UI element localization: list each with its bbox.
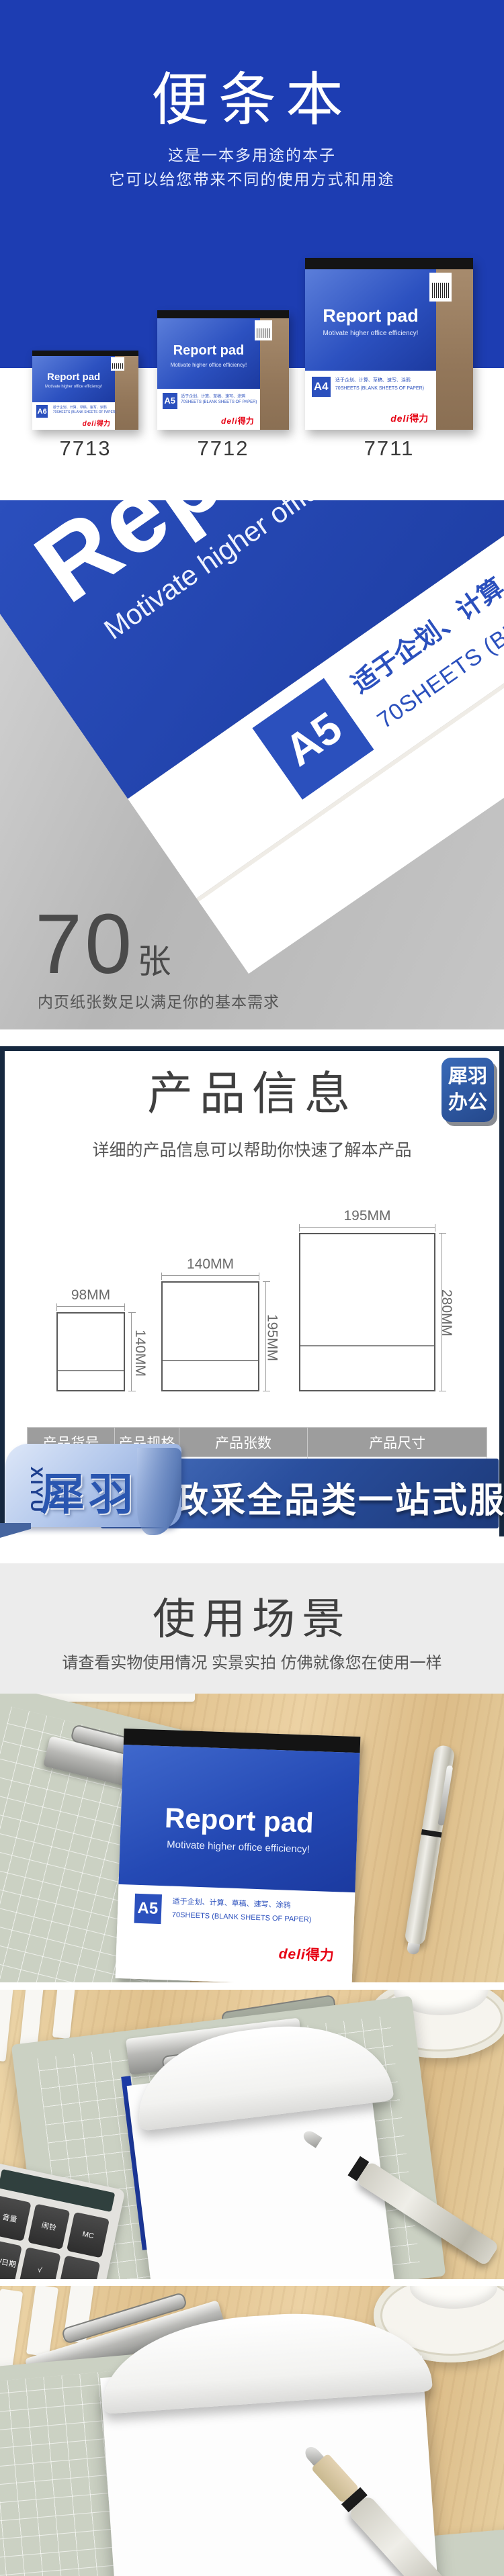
dim-a6-width-label: 98MM [56,1287,125,1303]
dim-a5-split-line [163,1360,258,1361]
ribbon-fold [137,1448,181,1535]
pad-cover: Report pad Motivate higher office effici… [305,269,436,371]
info-title: 产品信息 [5,1056,499,1123]
deli-logo: deli得力 [278,1943,334,1966]
photo-separator [0,1982,504,1990]
dim-a6-rect [56,1312,125,1391]
calc-key-time-date: 时间/日期 [0,2239,22,2279]
scene-title: 使用场景 [0,1585,504,1647]
deli-logo-cn: 得力 [238,416,254,426]
deli-logo-en: deli [390,413,409,424]
xiyu-badge-text: 犀羽 办公 [448,1064,487,1116]
pad-label-area: A4 适于企划、计算、草稿、速写、涂鸦 70SHEETS (BLANK SHEE… [305,371,436,430]
dim-a4-split-line [300,1345,434,1346]
deli-logo-cn: 得力 [409,413,428,424]
pad-cover-title: Report pad [157,343,260,359]
feature-section-70-sheets: Report pad Motivate higher office effici… [0,500,504,1029]
hero-subtitle-2: 它可以给您带来不同的使用方式和用途 [0,167,504,189]
pad-label-area: A5 适于企划、计算、草稿、速写、涂鸦 70SHEETS (BLANK SHEE… [116,1884,355,1982]
pad-cover-title: Report pad [305,306,436,326]
model-number-7713: 7713 [32,436,139,461]
pad-cover-title: Report pad [120,1800,358,1841]
product-pad-a5: Report pad Motivate higher office effici… [157,310,289,430]
dim-a4-height-label: 280MM [438,1280,454,1346]
calc-key-volume: 音量 [0,2195,31,2242]
size-badge: A5 [163,393,177,409]
size-badge: A4 [312,377,331,397]
pen-tip [407,1943,420,1956]
calc-key-mc: MC [67,2212,110,2258]
brand-service-banner: 政采全品类一站式服务 XIYU 犀羽 [0,1442,504,1541]
deli-logo: deli得力 [390,412,428,425]
size-badge: A5 [134,1894,162,1924]
sheets-line: 70SHEETS (BLANK SHEETS OF PAPER) [53,410,116,414]
barcode-icon [429,273,452,302]
sheet-count-unit: 张 [138,943,171,980]
pad-cover-tagline: Motivate higher office efficiency! [157,362,260,368]
photo-separator [0,2279,504,2286]
model-number-7711: 7711 [335,436,443,461]
dim-a5-width-line [161,1275,259,1276]
pad-cover-tagline: Motivate higher office efficiency! [120,1837,356,1857]
usage-line: 适于企划、计算、草稿、速写、涂鸦 [335,377,411,383]
size-badge: A6 [36,405,48,418]
model-number-7712: 7712 [169,436,277,461]
pad-cover-title: Report pad [32,371,115,383]
usage-line: 适于企划、计算、草稿、速写、涂鸦 [181,393,245,399]
dim-a5-width-label: 140MM [161,1256,259,1273]
sheet-count-desc: 内页纸张数足以满足你的基本需求 [38,989,280,1012]
photo-open-pad: 音量 闹铃 MC 时间/日期 √ [0,1990,504,2279]
banner-slogan: 政采全品类一站式服务 [173,1472,504,1522]
barcode-icon [111,357,125,371]
deli-logo-en: deli [83,420,97,428]
dim-a5-height-label: 195MM [264,1306,280,1370]
deli-logo-cn: 得力 [305,1947,334,1964]
dim-a4-width-line [299,1227,435,1228]
pen-barrel [347,2494,476,2576]
xiyu-badge-line2: 办公 [448,1090,487,1116]
product-detail-page: 便条本 这是一本多用途的本子 它可以给您带来不同的使用方式和用途 Report … [0,0,504,2576]
usage-scene-header: 使用场景 请查看实物使用情况 实景实拍 仿佛就像您在使用一样 [0,1563,504,1694]
pad-cover-tagline: Motivate higher office efficiency! [32,385,115,389]
barcode-lines [112,363,123,368]
pad-binding-strip [157,310,289,318]
deli-logo-en: deli [221,416,238,426]
pad-binding-strip [32,351,138,356]
dim-a6-split-line [58,1370,124,1371]
dim-a6-height-label: 140MM [132,1323,148,1383]
pad-cover: Report pad Motivate higher office effici… [32,356,115,403]
photo-pad-on-desk: Report pad Motivate higher office effici… [0,1694,504,1982]
scene-subtitle: 请查看实物使用情况 实景实拍 仿佛就像您在使用一样 [0,1649,504,1673]
pad-cover-tagline: Motivate higher office efficiency! [305,330,436,337]
calc-key-alarm: 闹铃 [28,2203,71,2250]
pad-cover: Report pad Motivate higher office effici… [118,1745,360,1892]
dim-a4-rect [299,1233,435,1391]
info-subtitle: 详细的产品信息可以帮助你快速了解本产品 [5,1137,499,1161]
usage-line: 适于企划、计算、草稿、速写、涂鸦 [53,405,107,410]
sheets-line: 70SHEETS (BLANK SHEETS OF PAPER) [172,1911,312,1923]
deli-logo: deli得力 [221,415,254,426]
pen-barrel [356,2161,500,2266]
deli-logo-en: deli [278,1947,306,1963]
sheet-count-number: 70 [35,896,134,991]
dim-a6-width-line [56,1306,125,1307]
calc-key-blank [57,2256,100,2279]
brand-ribbon: XIYU 犀羽 [5,1444,181,1527]
dim-a5-rect [161,1281,259,1391]
pad-label-area: A5 适于企划、计算、草稿、速写、涂鸦 70SHEETS (BLANK SHEE… [157,389,260,430]
xiyu-badge-line1: 犀羽 [448,1064,487,1090]
sheets-line: 70SHEETS (BLANK SHEETS OF PAPER) [335,386,424,391]
calc-key-sqrt: √ [18,2247,61,2279]
xiyu-office-badge: 犀羽 办公 [442,1058,494,1122]
hero-subtitle-1: 这是一本多用途的本子 [0,142,504,165]
deli-logo: deli得力 [83,418,110,428]
photo-open-pad-closeup [0,2286,504,2576]
product-pad-a6: Report pad Motivate higher office effici… [32,351,138,430]
ribbon-tail [0,1523,31,1538]
deli-logo-cn: 得力 [97,420,110,428]
barcode-lines [257,328,270,338]
product-pad-a4: Report pad Motivate higher office effici… [305,258,473,430]
brand-name: 犀羽 [40,1459,137,1523]
sheet-count: 70 张 [35,895,171,993]
barcode-lines [432,283,449,299]
pad-binding-strip [305,258,473,269]
pad-cover: Report pad Motivate higher office effici… [157,318,260,389]
barcode-icon [255,320,271,340]
photo-pad-a5: Report pad Motivate higher office effici… [116,1729,361,1982]
hero-title: 便条本 [0,52,504,136]
pad-label-area: A6 适于企划、计算、草稿、速写、涂鸦 70SHEETS (BLANK SHEE… [32,402,115,430]
usage-line: 适于企划、计算、草稿、速写、涂鸦 [172,1896,290,1911]
dim-a4-width-label: 195MM [299,1208,435,1224]
sheets-line: 70SHEETS (BLANK SHEETS OF PAPER) [181,400,257,404]
